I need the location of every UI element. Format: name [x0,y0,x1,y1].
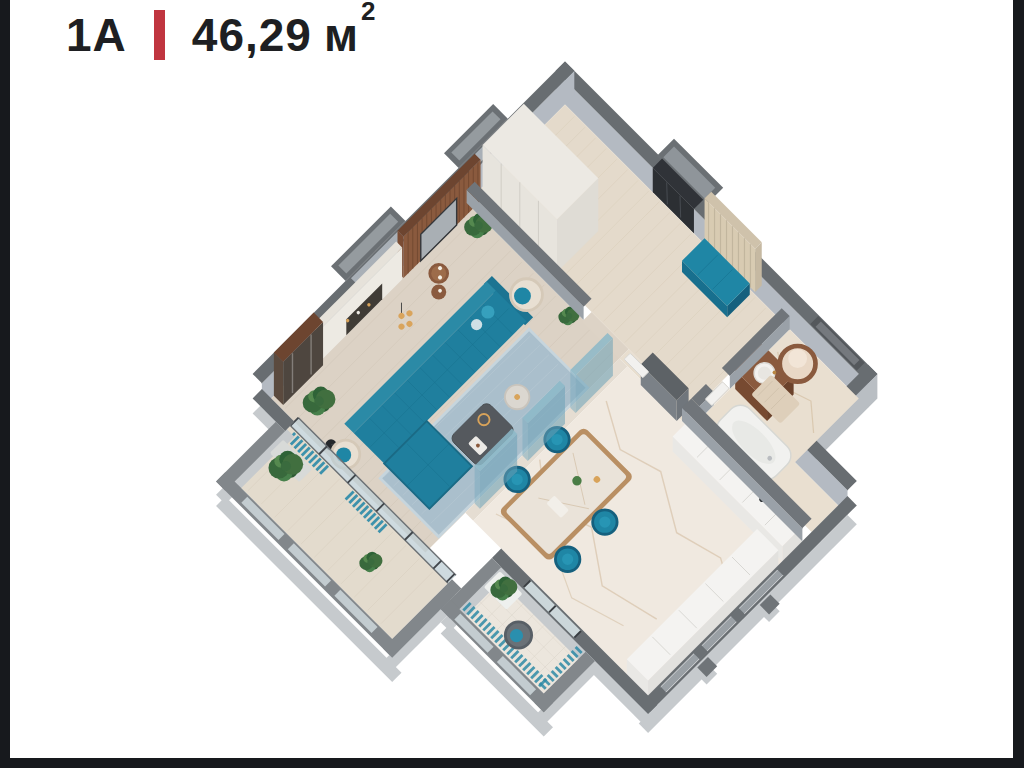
floorplan-3d-render [0,0,1024,768]
page: 1A 46,29 м 2 [0,0,1024,768]
